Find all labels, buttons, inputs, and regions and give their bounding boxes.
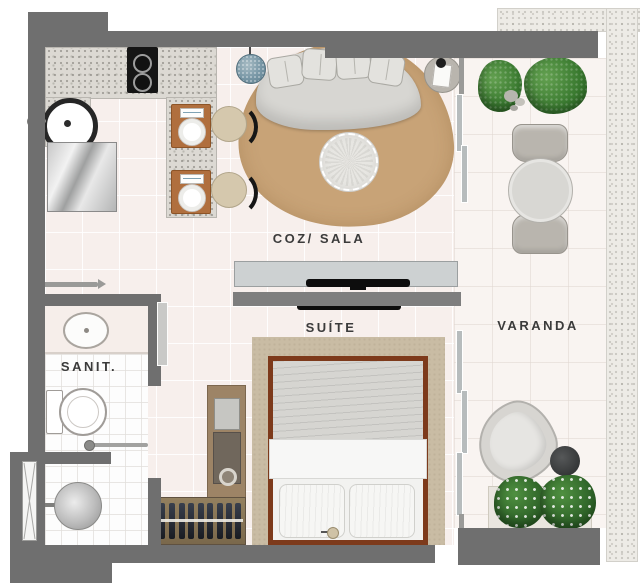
room-label-balcony: VARANDA	[478, 318, 598, 333]
stool	[211, 172, 247, 208]
balcony-parapet	[458, 528, 600, 565]
sliding-glass-door	[461, 145, 468, 203]
shower-glass-panel	[22, 461, 37, 541]
pouf-pleats-icon	[325, 138, 373, 186]
stool	[211, 106, 247, 142]
wardrobe-knob-icon	[219, 468, 237, 486]
pillow-icon	[266, 53, 305, 89]
plant	[478, 60, 522, 112]
clothes-rack	[154, 497, 246, 545]
wall-shower-divider	[45, 452, 111, 464]
toilet-icon	[59, 388, 107, 436]
door-stop-icon	[327, 527, 339, 539]
window-frame-stub	[459, 58, 464, 94]
towel-bar-knob-icon	[84, 440, 95, 451]
refrigerator-icon	[47, 142, 117, 212]
wall-top-living	[325, 31, 598, 58]
bathroom-sliding-door	[157, 302, 168, 366]
napkin-icon	[180, 108, 204, 118]
flowering-plant	[540, 475, 596, 529]
sheet-icon	[269, 439, 427, 479]
wardrobe	[207, 385, 246, 500]
cooktop-icon	[127, 47, 158, 93]
sliding-glass-door	[456, 452, 463, 516]
bed	[268, 356, 428, 545]
wardrobe-panel-icon	[214, 398, 240, 430]
window-frame-stub	[459, 514, 464, 528]
floor-plan: COZ/ SALA SUÍTE SANIT. VARANDA	[0, 0, 640, 588]
coffee-table	[550, 446, 580, 476]
plant	[524, 57, 587, 114]
wall-bottom-left-block	[10, 545, 112, 583]
sliding-glass-door	[456, 330, 463, 394]
burner-icon	[133, 54, 152, 73]
tv-foot-icon	[350, 287, 366, 290]
stones-icon	[504, 90, 518, 102]
sink-drain-icon	[64, 120, 71, 127]
washbasin-icon	[63, 312, 109, 349]
bed-pillow-icon	[349, 484, 415, 538]
sliding-glass-door	[456, 94, 463, 152]
place-setting	[171, 170, 211, 214]
room-label-suite: SUÍTE	[271, 320, 391, 335]
wall-bathroom-top	[45, 294, 148, 306]
glass-x-icon	[23, 462, 36, 540]
plate-icon	[178, 184, 206, 212]
place-setting	[171, 104, 211, 148]
room-label-bathroom: SANIT.	[39, 359, 139, 374]
tv-partition-wall	[233, 292, 461, 306]
wall-bathroom-right-lower	[148, 478, 161, 545]
dining-chair	[512, 124, 568, 162]
flowering-plant	[494, 476, 546, 528]
rack-rail-icon	[157, 519, 243, 522]
towel-bar-icon	[88, 443, 148, 447]
pouf	[320, 133, 378, 191]
shower-head-icon	[54, 482, 102, 530]
plate-icon	[178, 118, 206, 146]
tv-living-icon	[306, 279, 410, 287]
pendant-lamp-icon	[236, 54, 266, 84]
dining-table	[508, 158, 573, 223]
room-label-kitchen-living: COZ/ SALA	[249, 231, 389, 246]
entry-door-arrow-icon	[98, 279, 106, 289]
blanket-icon	[273, 361, 423, 442]
burner-icon	[133, 73, 152, 92]
wall-top-left-step	[28, 12, 108, 31]
lamp-knob-icon	[436, 58, 446, 68]
sliding-glass-door	[461, 390, 468, 454]
napkin-icon	[180, 174, 204, 184]
facade-band-right	[606, 8, 638, 562]
wall-top-kitchen	[28, 31, 328, 47]
